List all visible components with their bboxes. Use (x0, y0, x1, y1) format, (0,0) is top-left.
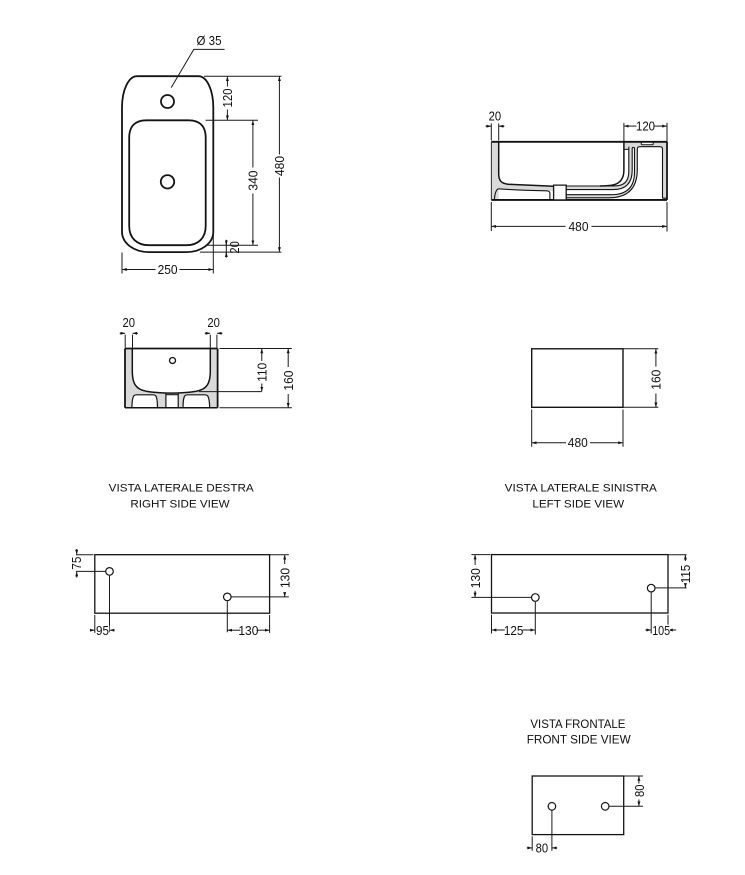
svg-text:VISTA LATERALE DESTRA: VISTA LATERALE DESTRA (109, 483, 254, 495)
svg-text:480: 480 (568, 435, 588, 450)
svg-text:250: 250 (158, 262, 178, 277)
svg-text:160: 160 (281, 371, 296, 391)
svg-text:480: 480 (569, 219, 589, 234)
svg-text:95: 95 (96, 623, 109, 638)
svg-text:80: 80 (536, 841, 549, 856)
svg-text:20: 20 (227, 241, 242, 254)
svg-text:115: 115 (678, 565, 693, 584)
svg-text:130: 130 (468, 568, 483, 588)
svg-text:120: 120 (220, 89, 235, 108)
svg-text:120: 120 (636, 119, 655, 134)
svg-text:RIGHT SIDE VIEW: RIGHT SIDE VIEW (130, 498, 230, 510)
svg-text:110: 110 (254, 363, 269, 382)
svg-text:75: 75 (69, 557, 84, 570)
svg-text:480: 480 (272, 156, 287, 176)
svg-text:125: 125 (504, 623, 524, 638)
svg-text:130: 130 (278, 568, 293, 588)
svg-text:20: 20 (489, 109, 502, 124)
svg-text:340: 340 (246, 171, 261, 191)
svg-text:105: 105 (652, 623, 670, 638)
svg-text:VISTA FRONTALE: VISTA FRONTALE (530, 717, 625, 731)
svg-text:LEFT SIDE VIEW: LEFT SIDE VIEW (532, 498, 624, 510)
svg-text:Ø 35: Ø 35 (197, 33, 222, 48)
svg-text:VISTA LATERALE SINISTRA: VISTA LATERALE SINISTRA (505, 483, 658, 495)
svg-text:20: 20 (123, 315, 136, 330)
svg-text:160: 160 (649, 370, 664, 390)
svg-text:20: 20 (207, 315, 220, 330)
svg-text:130: 130 (238, 623, 258, 638)
svg-text:FRONT SIDE VIEW: FRONT SIDE VIEW (527, 733, 631, 747)
svg-text:80: 80 (632, 785, 647, 798)
